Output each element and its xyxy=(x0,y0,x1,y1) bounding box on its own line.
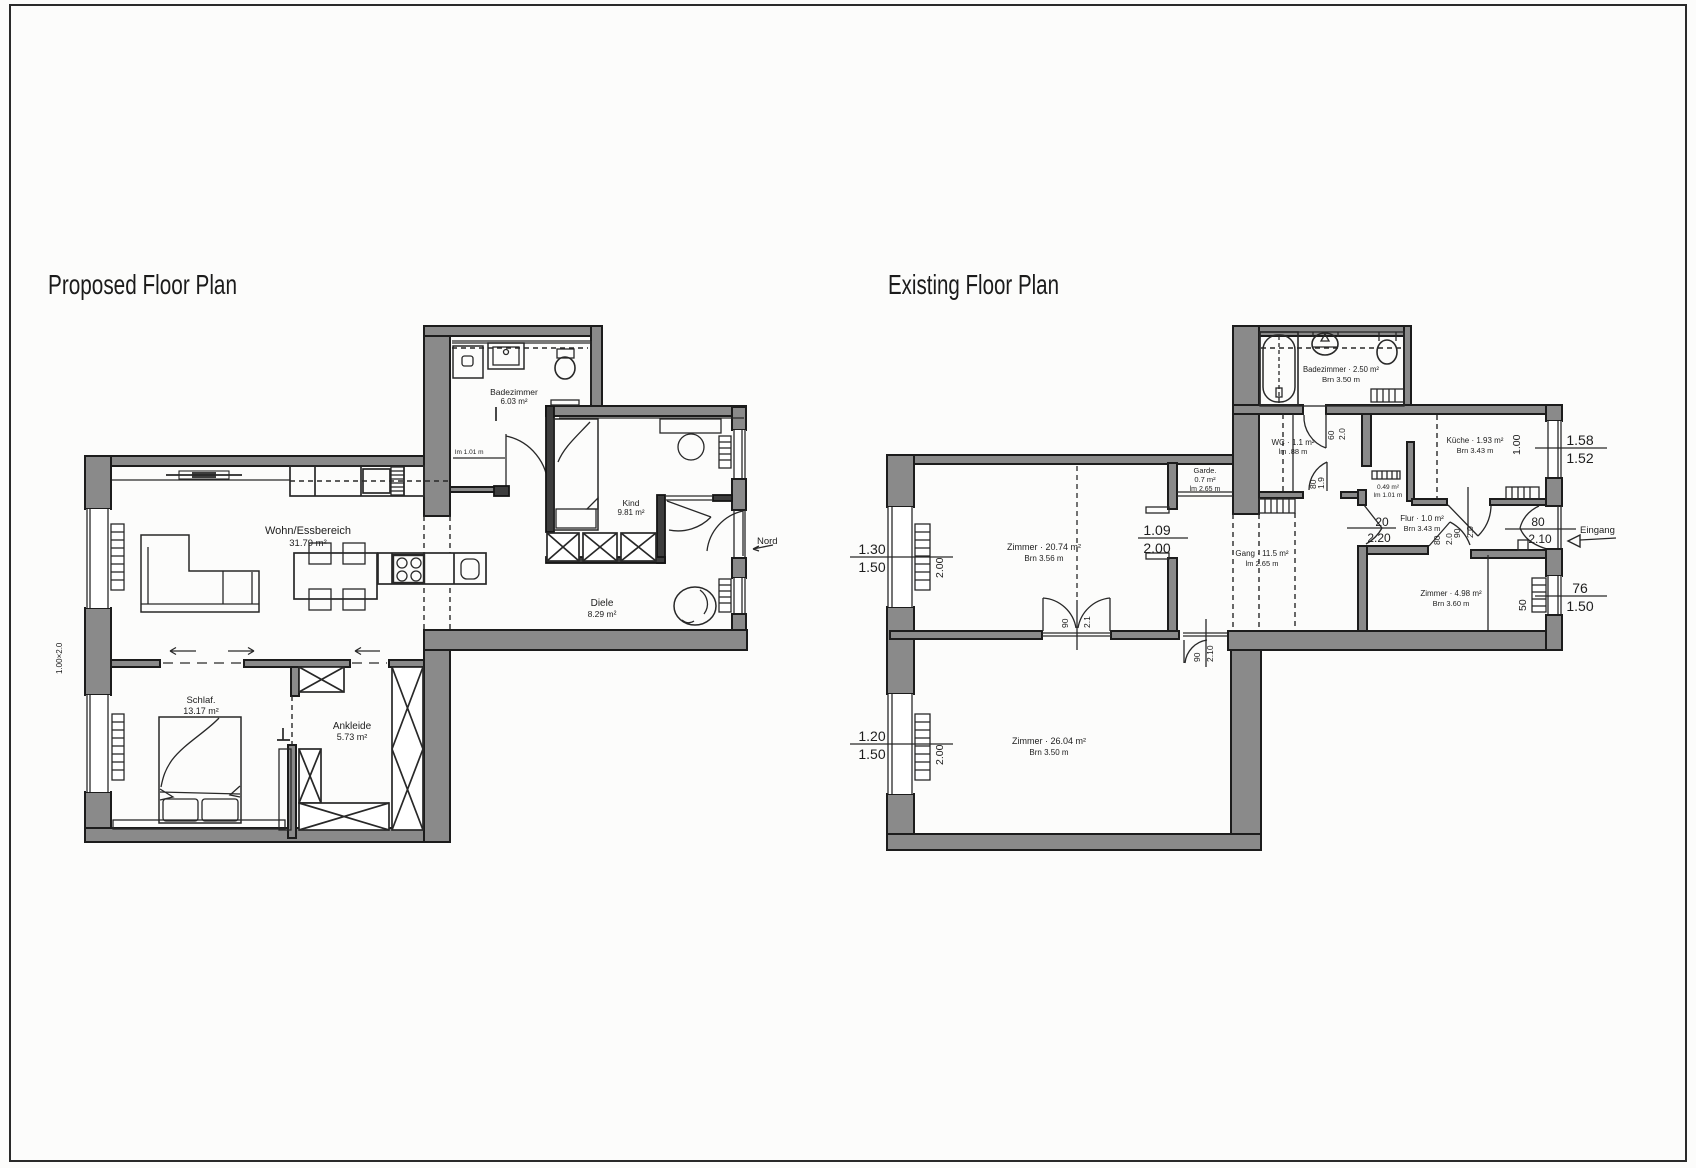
svg-text:Zimmer · 4.98 m²: Zimmer · 4.98 m² xyxy=(1420,589,1482,598)
svg-text:Brn 3.43 m: Brn 3.43 m xyxy=(1457,446,1494,455)
svg-text:Eingang: Eingang xyxy=(1580,525,1615,536)
svg-text:Wohn/Essbereich: Wohn/Essbereich xyxy=(265,525,351,537)
svg-text:Ankleide: Ankleide xyxy=(333,721,372,732)
svg-text:5.73 m²: 5.73 m² xyxy=(337,732,368,742)
svg-text:2.0: 2.0 xyxy=(1444,533,1454,545)
svg-text:Brn 3.60 m: Brn 3.60 m xyxy=(1433,599,1470,608)
svg-text:2.10: 2.10 xyxy=(1205,645,1215,662)
svg-text:Proposed Floor Plan: Proposed Floor Plan xyxy=(48,269,237,300)
svg-text:1.9: 1.9 xyxy=(1316,477,1326,489)
svg-text:1.50: 1.50 xyxy=(858,746,885,762)
svg-text:9.81 m²: 9.81 m² xyxy=(617,508,644,517)
svg-text:Badezimmer · 2.50 m²: Badezimmer · 2.50 m² xyxy=(1303,365,1379,374)
svg-text:Schlaf.: Schlaf. xyxy=(186,695,215,706)
svg-text:Zimmer · 20.74 m²: Zimmer · 20.74 m² xyxy=(1007,542,1081,552)
svg-text:Brn 3.50 m: Brn 3.50 m xyxy=(1322,375,1360,384)
svg-text:2.20: 2.20 xyxy=(1367,531,1391,545)
svg-text:Flur · 1.0 m²: Flur · 1.0 m² xyxy=(1400,514,1444,523)
svg-text:WC · 1.1 m²: WC · 1.1 m² xyxy=(1271,438,1314,447)
svg-text:80: 80 xyxy=(1531,515,1545,529)
svg-text:20: 20 xyxy=(1375,515,1389,529)
svg-text:0.49 m²: 0.49 m² xyxy=(1377,484,1400,491)
svg-text:lm 1.01 m: lm 1.01 m xyxy=(1374,492,1403,499)
svg-text:2.0: 2.0 xyxy=(1337,428,1347,440)
svg-text:1.00: 1.00 xyxy=(1511,434,1523,455)
svg-text:2.10: 2.10 xyxy=(1528,532,1552,546)
svg-text:Garde.: Garde. xyxy=(1194,466,1217,475)
svg-text:Gang · 11.5 m²: Gang · 11.5 m² xyxy=(1235,549,1289,558)
svg-text:lm .88 m: lm .88 m xyxy=(1279,447,1308,456)
svg-text:Diele: Diele xyxy=(591,598,614,609)
svg-text:Küche · 1.93 m²: Küche · 1.93 m² xyxy=(1447,436,1504,445)
svg-text:76: 76 xyxy=(1572,580,1588,596)
svg-text:2.00: 2.00 xyxy=(1143,540,1170,556)
svg-text:Nord: Nord xyxy=(757,536,778,547)
svg-text:0.7 m²: 0.7 m² xyxy=(1194,475,1216,484)
svg-text:lm 1.01 m: lm 1.01 m xyxy=(455,449,484,456)
svg-text:1.50: 1.50 xyxy=(1566,598,1593,614)
svg-text:2.0: 2.0 xyxy=(1465,526,1475,538)
svg-text:2.1: 2.1 xyxy=(1082,616,1092,628)
svg-text:60: 60 xyxy=(1326,430,1336,440)
svg-text:31.79 m²: 31.79 m² xyxy=(289,538,327,549)
svg-text:6.03 m²: 6.03 m² xyxy=(500,397,527,406)
svg-text:50: 50 xyxy=(1517,599,1529,611)
svg-text:1.52: 1.52 xyxy=(1566,450,1593,466)
svg-text:1.00×2.0: 1.00×2.0 xyxy=(55,642,64,674)
svg-text:1.20: 1.20 xyxy=(858,728,885,744)
svg-text:13.17 m²: 13.17 m² xyxy=(183,706,219,716)
svg-text:2.00: 2.00 xyxy=(934,557,946,578)
svg-text:90: 90 xyxy=(1192,652,1202,662)
svg-text:1.09: 1.09 xyxy=(1143,522,1170,538)
svg-text:lm 2.65 m: lm 2.65 m xyxy=(1246,559,1279,568)
svg-text:1.58: 1.58 xyxy=(1566,432,1593,448)
svg-text:1.50: 1.50 xyxy=(858,559,885,575)
svg-text:2.00: 2.00 xyxy=(934,744,946,765)
svg-text:Zimmer · 26.04 m²: Zimmer · 26.04 m² xyxy=(1012,736,1086,746)
svg-text:Brn 3.50 m: Brn 3.50 m xyxy=(1029,748,1068,757)
svg-text:8.29 m²: 8.29 m² xyxy=(588,609,617,619)
svg-text:80: 80 xyxy=(1432,535,1442,545)
svg-text:90: 90 xyxy=(1060,618,1070,628)
svg-text:Badezimmer: Badezimmer xyxy=(490,387,538,397)
svg-text:1.30: 1.30 xyxy=(858,541,885,557)
svg-text:Existing Floor Plan: Existing Floor Plan xyxy=(888,269,1059,300)
svg-text:lm 2.65 m: lm 2.65 m xyxy=(1190,486,1221,493)
svg-text:Kind: Kind xyxy=(622,498,639,508)
svg-text:Brn 3.56 m: Brn 3.56 m xyxy=(1024,554,1063,563)
svg-text:Brn 3.43 m: Brn 3.43 m xyxy=(1404,524,1441,533)
